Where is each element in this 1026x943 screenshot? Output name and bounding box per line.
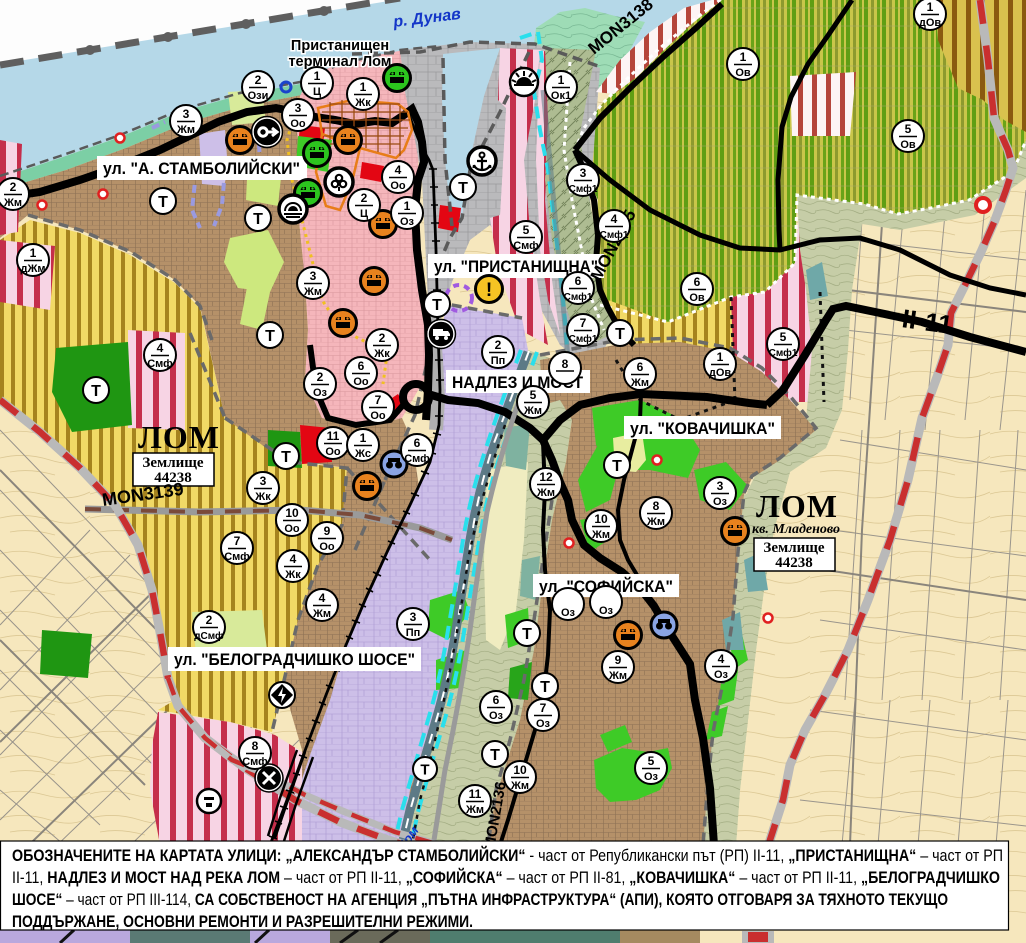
- svg-text:1: 1: [404, 199, 411, 213]
- svg-text:Т: Т: [420, 762, 429, 779]
- svg-text:4: 4: [395, 163, 402, 177]
- svg-text:3: 3: [260, 474, 267, 488]
- svg-text:5: 5: [523, 223, 530, 237]
- svg-text:Смф1: Смф1: [600, 229, 629, 241]
- svg-text:Жм: Жм: [176, 124, 195, 136]
- svg-text:дЖм: дЖм: [20, 263, 45, 275]
- svg-text:Оз: Оз: [561, 607, 576, 619]
- svg-text:2: 2: [317, 370, 324, 384]
- svg-text:Смф: Смф: [513, 240, 539, 252]
- svg-text:Жм: Жм: [630, 377, 649, 389]
- svg-text:Т: Т: [458, 180, 468, 197]
- svg-text:3: 3: [310, 269, 317, 283]
- svg-text:4: 4: [157, 341, 164, 355]
- svg-text:3: 3: [183, 107, 190, 121]
- svg-text:8: 8: [252, 739, 259, 753]
- svg-text:Пп: Пп: [406, 627, 421, 639]
- svg-text:1: 1: [558, 73, 565, 87]
- svg-text:ул. "А. СТАМБОЛИЙСКИ": ул. "А. СТАМБОЛИЙСКИ": [103, 159, 300, 178]
- svg-text:1: 1: [360, 431, 367, 445]
- svg-text:7: 7: [375, 393, 382, 407]
- svg-text:2: 2: [255, 73, 262, 87]
- svg-text:Пристанищен: Пристанищен: [291, 38, 389, 54]
- svg-text:Жк: Жк: [284, 569, 301, 581]
- svg-text:Оо: Оо: [284, 523, 300, 535]
- svg-text:7: 7: [234, 534, 241, 548]
- svg-text:Ози: Ози: [248, 90, 269, 102]
- svg-text:Смф1: Смф1: [564, 291, 593, 303]
- svg-text:Ов: Ов: [735, 67, 751, 79]
- svg-text:Смф1: Смф1: [569, 333, 598, 345]
- svg-text:10: 10: [513, 763, 527, 777]
- svg-text:5: 5: [530, 388, 537, 402]
- svg-text:Жм: Жм: [465, 804, 484, 816]
- svg-text:Ов: Ов: [900, 139, 916, 151]
- svg-text:7: 7: [580, 316, 587, 330]
- svg-text:3: 3: [717, 479, 724, 493]
- svg-text:!: !: [486, 280, 492, 301]
- svg-text:10: 10: [594, 512, 608, 526]
- svg-text:Смф: Смф: [224, 551, 250, 563]
- svg-text:Жм: Жм: [608, 670, 627, 682]
- svg-text:Смф: Смф: [147, 358, 173, 370]
- svg-text:4: 4: [319, 591, 326, 605]
- svg-text:Оз: Оз: [713, 496, 728, 508]
- svg-text:Т: Т: [612, 458, 622, 475]
- svg-text:1: 1: [30, 246, 37, 260]
- svg-text:3: 3: [580, 166, 587, 180]
- svg-text:Смф1: Смф1: [569, 183, 598, 195]
- svg-text:ул. "КОВАЧИШКА": ул. "КОВАЧИШКА": [630, 419, 775, 438]
- svg-text:11: 11: [469, 787, 482, 801]
- svg-text:Оз: Оз: [313, 387, 328, 399]
- svg-text:6: 6: [637, 360, 644, 374]
- svg-text:II-11, НАДЛЕЗ И МОСТ НАД РЕКА: II-11, НАДЛЕЗ И МОСТ НАД РЕКА ЛОМ – част…: [12, 868, 1000, 887]
- svg-text:Пп: Пп: [491, 355, 506, 367]
- svg-text:Оо: Оо: [325, 446, 341, 458]
- svg-text:6: 6: [358, 359, 365, 373]
- svg-text:8: 8: [653, 499, 660, 513]
- svg-text:Т: Т: [158, 194, 168, 211]
- svg-text:Ов: Ов: [689, 292, 705, 304]
- svg-text:44238: 44238: [775, 555, 813, 571]
- svg-text:Т: Т: [490, 747, 500, 764]
- svg-text:Т: Т: [432, 297, 442, 314]
- svg-text:1: 1: [360, 80, 367, 94]
- svg-text:5: 5: [905, 122, 912, 136]
- svg-text:2: 2: [361, 191, 368, 205]
- svg-text:дОв: дОв: [919, 17, 942, 29]
- svg-text:Оо: Оо: [390, 180, 406, 192]
- svg-text:ШОСЕ“ – част от РП III-114, СА: ШОСЕ“ – част от РП III-114, СА СОБСТВЕНО…: [12, 891, 948, 909]
- svg-text:Жм: Жм: [646, 516, 665, 528]
- svg-text:Жс: Жс: [354, 448, 371, 460]
- svg-text:2: 2: [206, 613, 213, 627]
- svg-text:ЛОМ: ЛОМ: [756, 488, 838, 524]
- svg-text:3: 3: [410, 610, 417, 624]
- svg-text:Жм: Жм: [510, 780, 529, 792]
- svg-text:Оз: Оз: [536, 718, 551, 730]
- svg-text:8: 8: [562, 357, 569, 371]
- svg-text:6: 6: [694, 275, 701, 289]
- svg-text:Оз: Оз: [599, 605, 614, 617]
- svg-text:Жм: Жм: [523, 405, 542, 417]
- svg-text:Оз: Оз: [489, 710, 504, 722]
- svg-text:10: 10: [285, 506, 299, 520]
- svg-text:5: 5: [648, 754, 655, 768]
- svg-text:дСмф: дСмф: [194, 630, 224, 642]
- svg-text:Ок1: Ок1: [551, 90, 571, 102]
- svg-text:Оо: Оо: [290, 118, 306, 130]
- svg-text:9: 9: [324, 524, 331, 538]
- svg-text:3: 3: [295, 101, 302, 115]
- svg-text:Смф: Смф: [404, 453, 430, 465]
- svg-text:1: 1: [927, 0, 934, 14]
- svg-text:11: 11: [327, 429, 340, 443]
- svg-text:кв. Младеново: кв. Младеново: [752, 522, 840, 537]
- svg-text:4: 4: [611, 212, 618, 226]
- svg-text:Оз: Оз: [400, 216, 415, 228]
- svg-text:Т: Т: [522, 626, 532, 643]
- svg-text:1: 1: [717, 350, 724, 364]
- svg-text:Смф: Смф: [242, 756, 268, 768]
- svg-text:Жм: Жм: [303, 286, 322, 298]
- svg-text:2: 2: [379, 331, 386, 345]
- svg-text:2: 2: [10, 180, 17, 194]
- svg-text:ОБОЗНАЧЕНИТЕ НА КАРТАТА УЛИЦИ:: ОБОЗНАЧЕНИТЕ НА КАРТАТА УЛИЦИ: „АЛЕКСАНД…: [12, 846, 1003, 865]
- svg-text:12: 12: [539, 470, 553, 484]
- svg-text:Оо: Оо: [370, 410, 386, 422]
- svg-text:Землище: Землище: [763, 540, 825, 556]
- svg-text:2: 2: [495, 338, 502, 352]
- svg-text:Ц: Ц: [360, 208, 368, 220]
- svg-text:Т: Т: [615, 326, 625, 343]
- svg-text:4: 4: [718, 652, 725, 666]
- svg-text:Ц: Ц: [313, 86, 321, 98]
- svg-text:терминал Лом: терминал Лом: [288, 54, 391, 70]
- svg-text:Жк: Жк: [373, 348, 390, 360]
- svg-text:6: 6: [414, 436, 421, 450]
- svg-text:Жм: Жм: [591, 529, 610, 541]
- svg-text:1: 1: [740, 50, 747, 64]
- svg-text:6: 6: [575, 274, 582, 288]
- svg-text:Жм: Жм: [536, 487, 555, 499]
- svg-text:Т: Т: [253, 211, 263, 228]
- svg-text:Т: Т: [265, 328, 275, 345]
- svg-text:Смф1: Смф1: [769, 347, 798, 359]
- svg-text:Землище: Землище: [142, 455, 204, 471]
- svg-text:9: 9: [615, 653, 622, 667]
- svg-text:Жм: Жм: [312, 608, 331, 620]
- svg-text:5: 5: [780, 330, 787, 344]
- svg-text:Жк: Жк: [354, 97, 371, 109]
- svg-text:Оз: Оз: [644, 771, 659, 783]
- svg-text:Т: Т: [540, 679, 550, 696]
- svg-text:7: 7: [540, 701, 547, 715]
- svg-text:ЛОМ: ЛОМ: [138, 419, 220, 455]
- svg-text:ПОДДЪРЖАНЕ, ОСНОВНИ РЕМОНТИ И: ПОДДЪРЖАНЕ, ОСНОВНИ РЕМОНТИ И РАЗРЕШИТЕЛ…: [12, 913, 473, 931]
- svg-text:Жм: Жм: [3, 197, 22, 209]
- svg-text:ул. "БЕЛОГРАДЧИШКО ШОСЕ": ул. "БЕЛОГРАДЧИШКО ШОСЕ": [174, 650, 415, 669]
- svg-text:4: 4: [290, 552, 297, 566]
- svg-text:6: 6: [493, 693, 500, 707]
- svg-text:Жк: Жк: [254, 491, 271, 503]
- svg-text:Оо: Оо: [353, 376, 369, 388]
- svg-text:Оз: Оз: [714, 669, 729, 681]
- svg-text:Оо: Оо: [319, 541, 335, 553]
- svg-text:1: 1: [314, 69, 321, 83]
- svg-text:Т: Т: [91, 383, 101, 400]
- svg-text:дОв: дОв: [709, 367, 732, 379]
- svg-text:Т: Т: [281, 449, 291, 466]
